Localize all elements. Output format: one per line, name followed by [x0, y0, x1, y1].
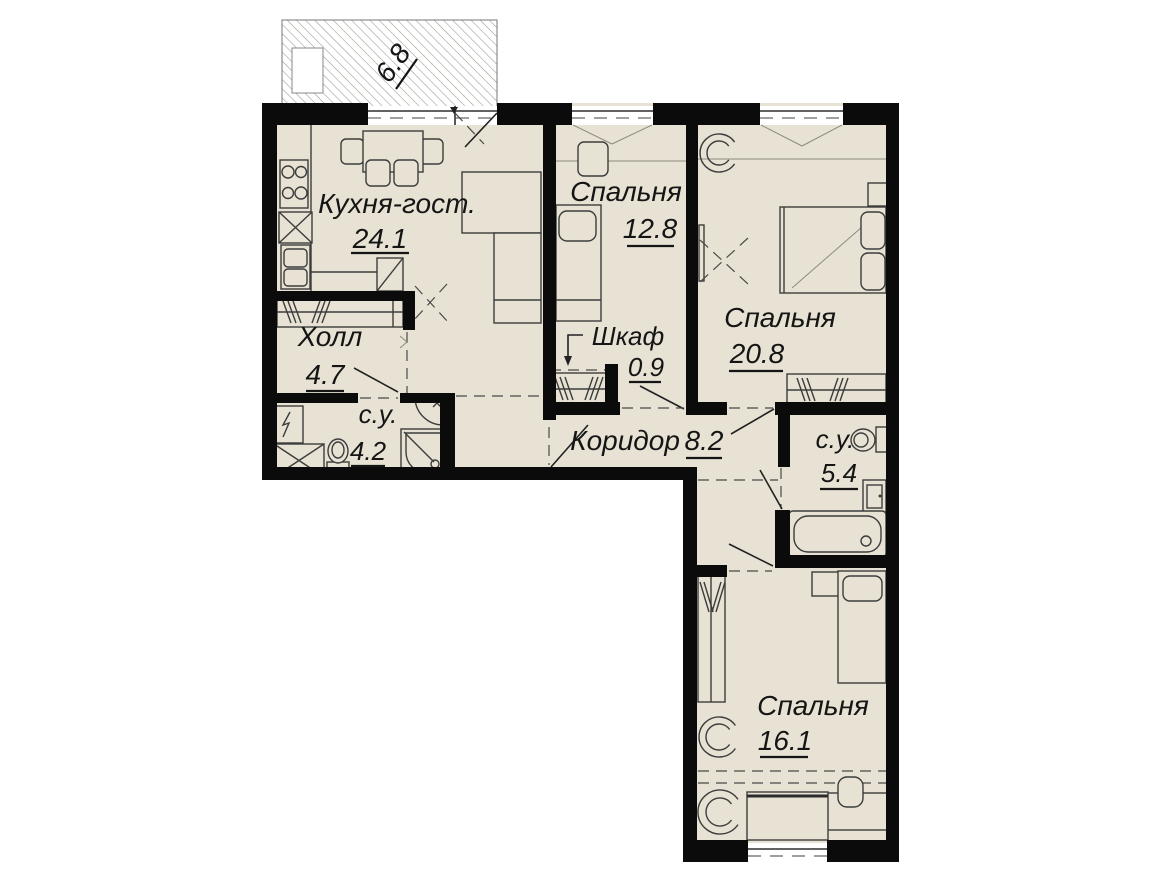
electric-panel-icon [275, 406, 303, 443]
toilet-icon [851, 427, 887, 452]
closet-name: Шкаф [592, 321, 664, 351]
bathtub-icon [789, 511, 886, 557]
sink-icon [863, 480, 886, 512]
bath1-name: с.у. [359, 399, 398, 429]
hall-name: Холл [297, 321, 363, 352]
floor-plan-page: 6.8 [0, 0, 1164, 883]
bedroom2-area: 20.8 [729, 338, 785, 369]
kitchen-sink-icon [281, 245, 310, 289]
kitchen-cabinet-icon [279, 212, 312, 243]
kitchen-name: Кухня-гост. [318, 188, 476, 219]
closet-rack-icon [550, 370, 612, 404]
nightstand-icon [578, 142, 608, 176]
nightstand-icon [868, 183, 888, 206]
stove-icon [280, 160, 308, 208]
floor-plan-drawing: 6.8 [0, 0, 1164, 883]
single-bed-icon [838, 571, 886, 683]
room-label-corridor: Коридор 8.2 [570, 425, 724, 458]
double-bed-icon [780, 207, 886, 293]
bath1-area: 4.2 [350, 436, 387, 466]
chair-icon [838, 777, 863, 807]
balcony-landing [292, 48, 323, 93]
nightstand-icon [812, 572, 840, 596]
bedroom3-window [748, 843, 827, 862]
corridor-area: 8.2 [685, 425, 724, 456]
bedroom3-name: Спальня [757, 690, 869, 721]
single-bed-icon [556, 205, 601, 321]
hall-area: 4.7 [306, 359, 346, 390]
bath2-name: с.у. [816, 424, 855, 454]
bedroom2-name: Спальня [724, 302, 836, 333]
wardrobe-icon [787, 374, 886, 405]
closet-area: 0.9 [628, 352, 664, 382]
bath2-area: 5.4 [821, 458, 857, 488]
kitchen-area: 24.1 [352, 223, 408, 254]
bedroom3-area: 16.1 [758, 725, 813, 756]
wall-panel [699, 225, 704, 281]
wardrobe-icon [698, 572, 725, 702]
balcony: 6.8 [282, 20, 497, 107]
bedroom1-name: Спальня [570, 176, 682, 207]
bedroom1-area: 12.8 [623, 213, 678, 244]
corridor-name: Коридор [570, 425, 680, 456]
